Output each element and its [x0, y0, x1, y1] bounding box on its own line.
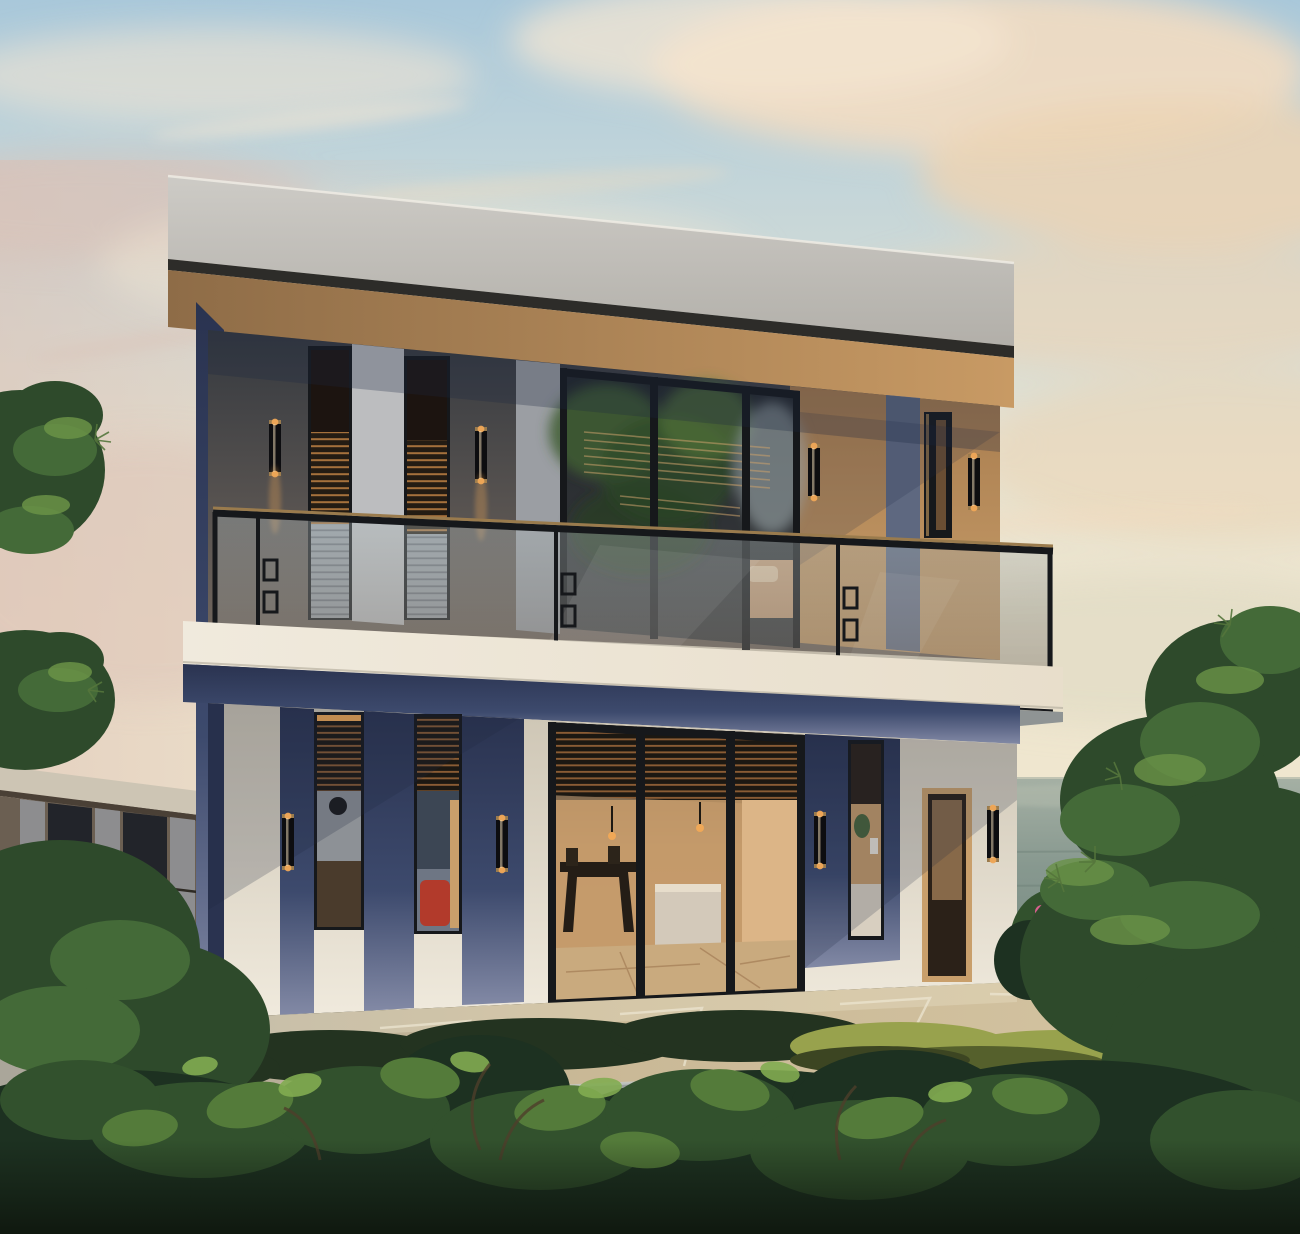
villa-rendering [0, 0, 1300, 1234]
rendering-canvas [0, 0, 1300, 1234]
lower-sliding-door [548, 722, 805, 1009]
lower-panel-navy-3 [462, 716, 524, 1005]
foreground-vignette [0, 1140, 1300, 1234]
dining-room-interior [556, 800, 800, 1004]
red-sofa [420, 880, 450, 926]
lower-facade [208, 703, 1017, 1018]
main-villa [168, 176, 1063, 1026]
